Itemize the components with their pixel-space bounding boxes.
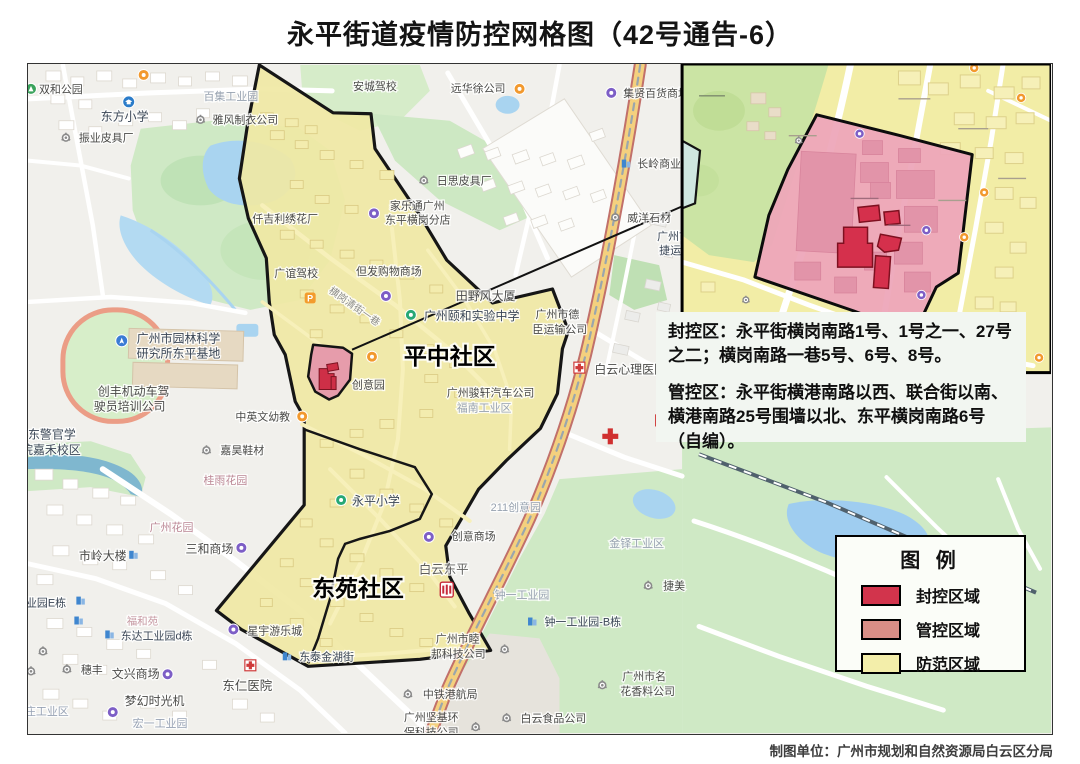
hospital-icon: [574, 362, 585, 373]
green-icon: [336, 495, 347, 506]
map-label: 东方小学: [101, 109, 149, 124]
map-label: 三和商场: [186, 541, 234, 556]
page-title: 永平街道疫情防控网格图（42号通告-6）: [0, 13, 1080, 52]
map-label: 长岭商业: [637, 157, 681, 171]
svg-text:P: P: [307, 293, 313, 303]
map-label: 远华徐公司: [451, 81, 506, 95]
map-label: 广东警官学: [28, 426, 76, 441]
legend-label-sealed: 封控区域: [916, 583, 980, 607]
purple-icon: [236, 542, 247, 553]
map-label: 白云食品公司: [521, 711, 587, 725]
park-icon: [28, 83, 36, 94]
map-label: 驶员培训公司: [94, 398, 166, 413]
map-label: 田野风大厦: [456, 289, 516, 303]
legend-swatch-sealed: [861, 585, 901, 606]
map-label: 宏一工业园: [133, 716, 188, 730]
map-label: 雁庄工业区: [28, 704, 69, 718]
map-label: 白云东平: [419, 562, 469, 577]
map-label: 平中社区: [404, 344, 496, 370]
orange-icon: [1016, 93, 1025, 102]
map-label: 创意园: [352, 378, 385, 392]
map-label: 广州坚基环: [404, 711, 459, 724]
map-label: 广州市园林科学: [137, 331, 221, 346]
map-label: 安城驾校: [353, 79, 397, 93]
purple-icon: [606, 87, 617, 98]
managed-zone-text: 管控区：永平街横港南路以西、联合街以南、横港南路25号围墙以北、东平横岗南路6号…: [668, 381, 1016, 453]
map-label: 穗丰: [81, 663, 103, 676]
purple-icon: [917, 290, 926, 299]
map-label: 金铎工业区: [609, 536, 664, 550]
map-label: 东平横岗分店: [385, 212, 451, 226]
hospital-icon: [245, 660, 256, 671]
map-label: 211创意园: [491, 500, 541, 514]
map-label: 集贤百货商场: [623, 86, 689, 100]
purple-icon: [162, 669, 173, 680]
map-label: 东仁医院: [222, 679, 272, 693]
orange-icon: [1034, 353, 1043, 362]
map-label: 福南工业区: [457, 400, 512, 414]
map-label: 广州市德: [536, 307, 580, 321]
zone-info-panel: 封控区：永平街横岗南路1号、1号之一、27号之二；横岗南路一巷5号、6号、8号。…: [656, 312, 1026, 442]
map-label: 保科技公司: [404, 725, 459, 733]
purple-icon: [369, 208, 380, 219]
orange-icon: [138, 69, 149, 80]
legend: 图 例 封控区域 管控区域 防范区域: [835, 535, 1026, 672]
purple-icon: [855, 129, 864, 138]
orange-icon: [960, 233, 969, 242]
green-icon: [405, 309, 416, 320]
map-label: 桂雨花园: [203, 473, 247, 487]
map-label: 中英文幼教: [235, 409, 290, 423]
map-label: 研究所东平基地: [137, 346, 221, 361]
map-label: 创意商场: [452, 529, 496, 543]
map-label: 臣运输公司: [533, 322, 588, 336]
map-label: 东苑社区: [312, 576, 404, 602]
map-label: 嘉昊鞋材: [220, 443, 264, 457]
purple-icon: [380, 290, 391, 301]
map-label: 工业园E栋: [28, 596, 66, 610]
legend-label-prevention: 防范区域: [916, 651, 980, 675]
map-label: 文兴商场: [112, 666, 160, 681]
map-label: 双和公园: [39, 83, 83, 96]
orange-icon: [367, 351, 378, 362]
map-label: 日思皮具厂: [437, 174, 492, 187]
map-label: 星宇游乐城: [247, 624, 302, 637]
map-label: 院嘉禾校区: [28, 442, 81, 457]
map-label: 广州市名: [622, 669, 666, 683]
legend-swatch-prevention: [861, 653, 901, 674]
map-label: 邦科技公司: [431, 646, 486, 660]
map-label: 仟吉利绣花厂: [252, 212, 318, 225]
attribution: 制图单位：广州市规划和自然资源局白云区分局: [770, 740, 1054, 760]
map-label: 永平小学: [352, 493, 400, 508]
legend-row-sealed: 封控区域: [861, 583, 1024, 607]
map-label: 广州市睦: [436, 631, 480, 645]
map-label: 广州骏轩汽车公司: [447, 386, 535, 400]
map-label: 但发购物商场: [356, 264, 422, 278]
purple-icon: [228, 624, 239, 635]
purple-icon: [922, 226, 931, 235]
orange-icon: [980, 188, 989, 197]
map-label: 百集工业园: [203, 89, 258, 103]
map-label: 东达工业园d栋: [121, 628, 193, 642]
sealed-zone-text: 封控区：永平街横岗南路1号、1号之一、27号之二；横岗南路一巷5号、6号、8号。: [668, 320, 1016, 368]
orange-icon: [297, 411, 308, 422]
map-label: 钟一工业园-B栋: [544, 614, 621, 628]
school-icon: [123, 96, 135, 108]
map-label: 捷美: [663, 579, 685, 593]
legend-label-managed: 管控区域: [916, 617, 980, 641]
map-label: 广谊驾校: [274, 266, 318, 280]
map-label: 威洋石材: [627, 210, 671, 224]
legend-title: 图 例: [837, 544, 1024, 573]
nav-icon: [116, 335, 128, 347]
purple-icon: [423, 531, 434, 542]
map-label: 花香料公司: [620, 684, 675, 698]
page: { "title": "永平街道疫情防控网格图（42号通告-6）", "info…: [0, 0, 1080, 764]
map-label: 福和苑: [127, 614, 159, 627]
map-label: 创丰机动车驾: [98, 384, 170, 399]
map-label: 广州颐和实验中学: [424, 308, 520, 323]
map-label: 振业皮具厂: [79, 131, 134, 145]
map-label: 钟一工业园: [495, 588, 550, 602]
map-label: 市岭大楼: [79, 548, 127, 563]
map-label: 梦幻时光机: [125, 694, 185, 708]
legend-swatch-managed: [861, 619, 901, 640]
map-label: 中铁港航局: [423, 687, 478, 701]
legend-row-managed: 管控区域: [861, 617, 1024, 641]
map-label: 雅风制衣公司: [212, 113, 278, 127]
orange-icon: [514, 83, 525, 94]
map-label: 东泰金湖街: [299, 649, 354, 663]
purple-icon: [107, 707, 118, 718]
map-label: 家乐通广州: [390, 198, 445, 212]
metro-icon: [440, 582, 453, 597]
parking-icon: P: [305, 292, 316, 303]
legend-row-prevention: 防范区域: [861, 651, 1024, 675]
map-label: 广州花园: [150, 521, 194, 534]
